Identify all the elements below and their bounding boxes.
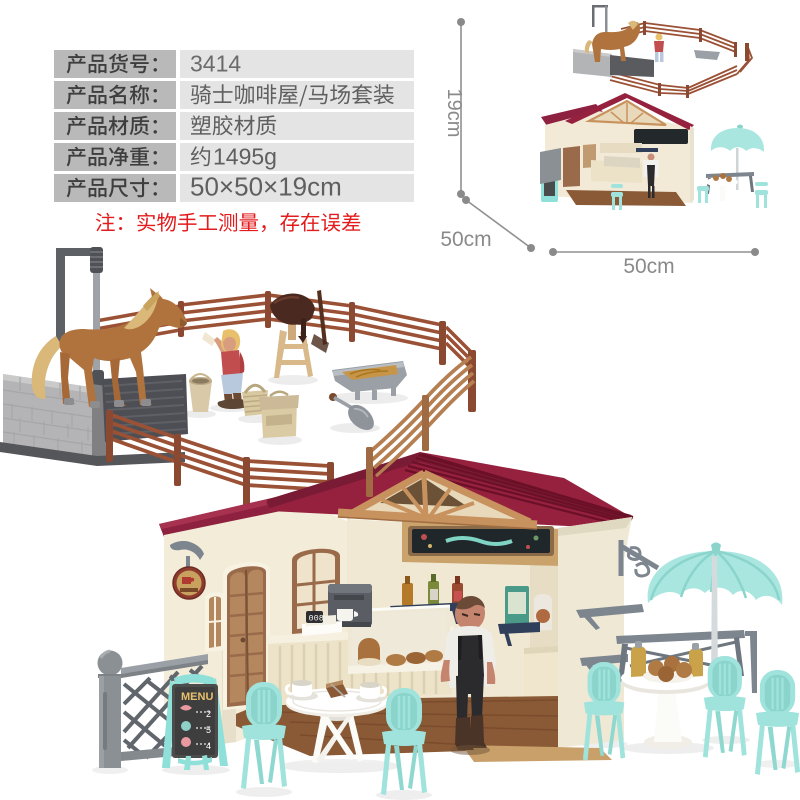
svg-text:50×50×19cm: 50×50×19cm bbox=[190, 172, 342, 202]
svg-text:50cm: 50cm bbox=[440, 228, 491, 251]
svg-text:1495g: 1495g bbox=[213, 144, 277, 170]
svg-text:008: 008 bbox=[309, 614, 324, 624]
svg-text:5: 5 bbox=[206, 725, 211, 735]
svg-text:19cm: 19cm bbox=[443, 89, 465, 138]
svg-text:2: 2 bbox=[206, 709, 211, 719]
svg-text:MENU: MENU bbox=[181, 691, 213, 703]
svg-text:3414: 3414 bbox=[190, 51, 241, 77]
svg-text:50cm: 50cm bbox=[623, 255, 674, 278]
svg-text:4: 4 bbox=[206, 741, 211, 751]
